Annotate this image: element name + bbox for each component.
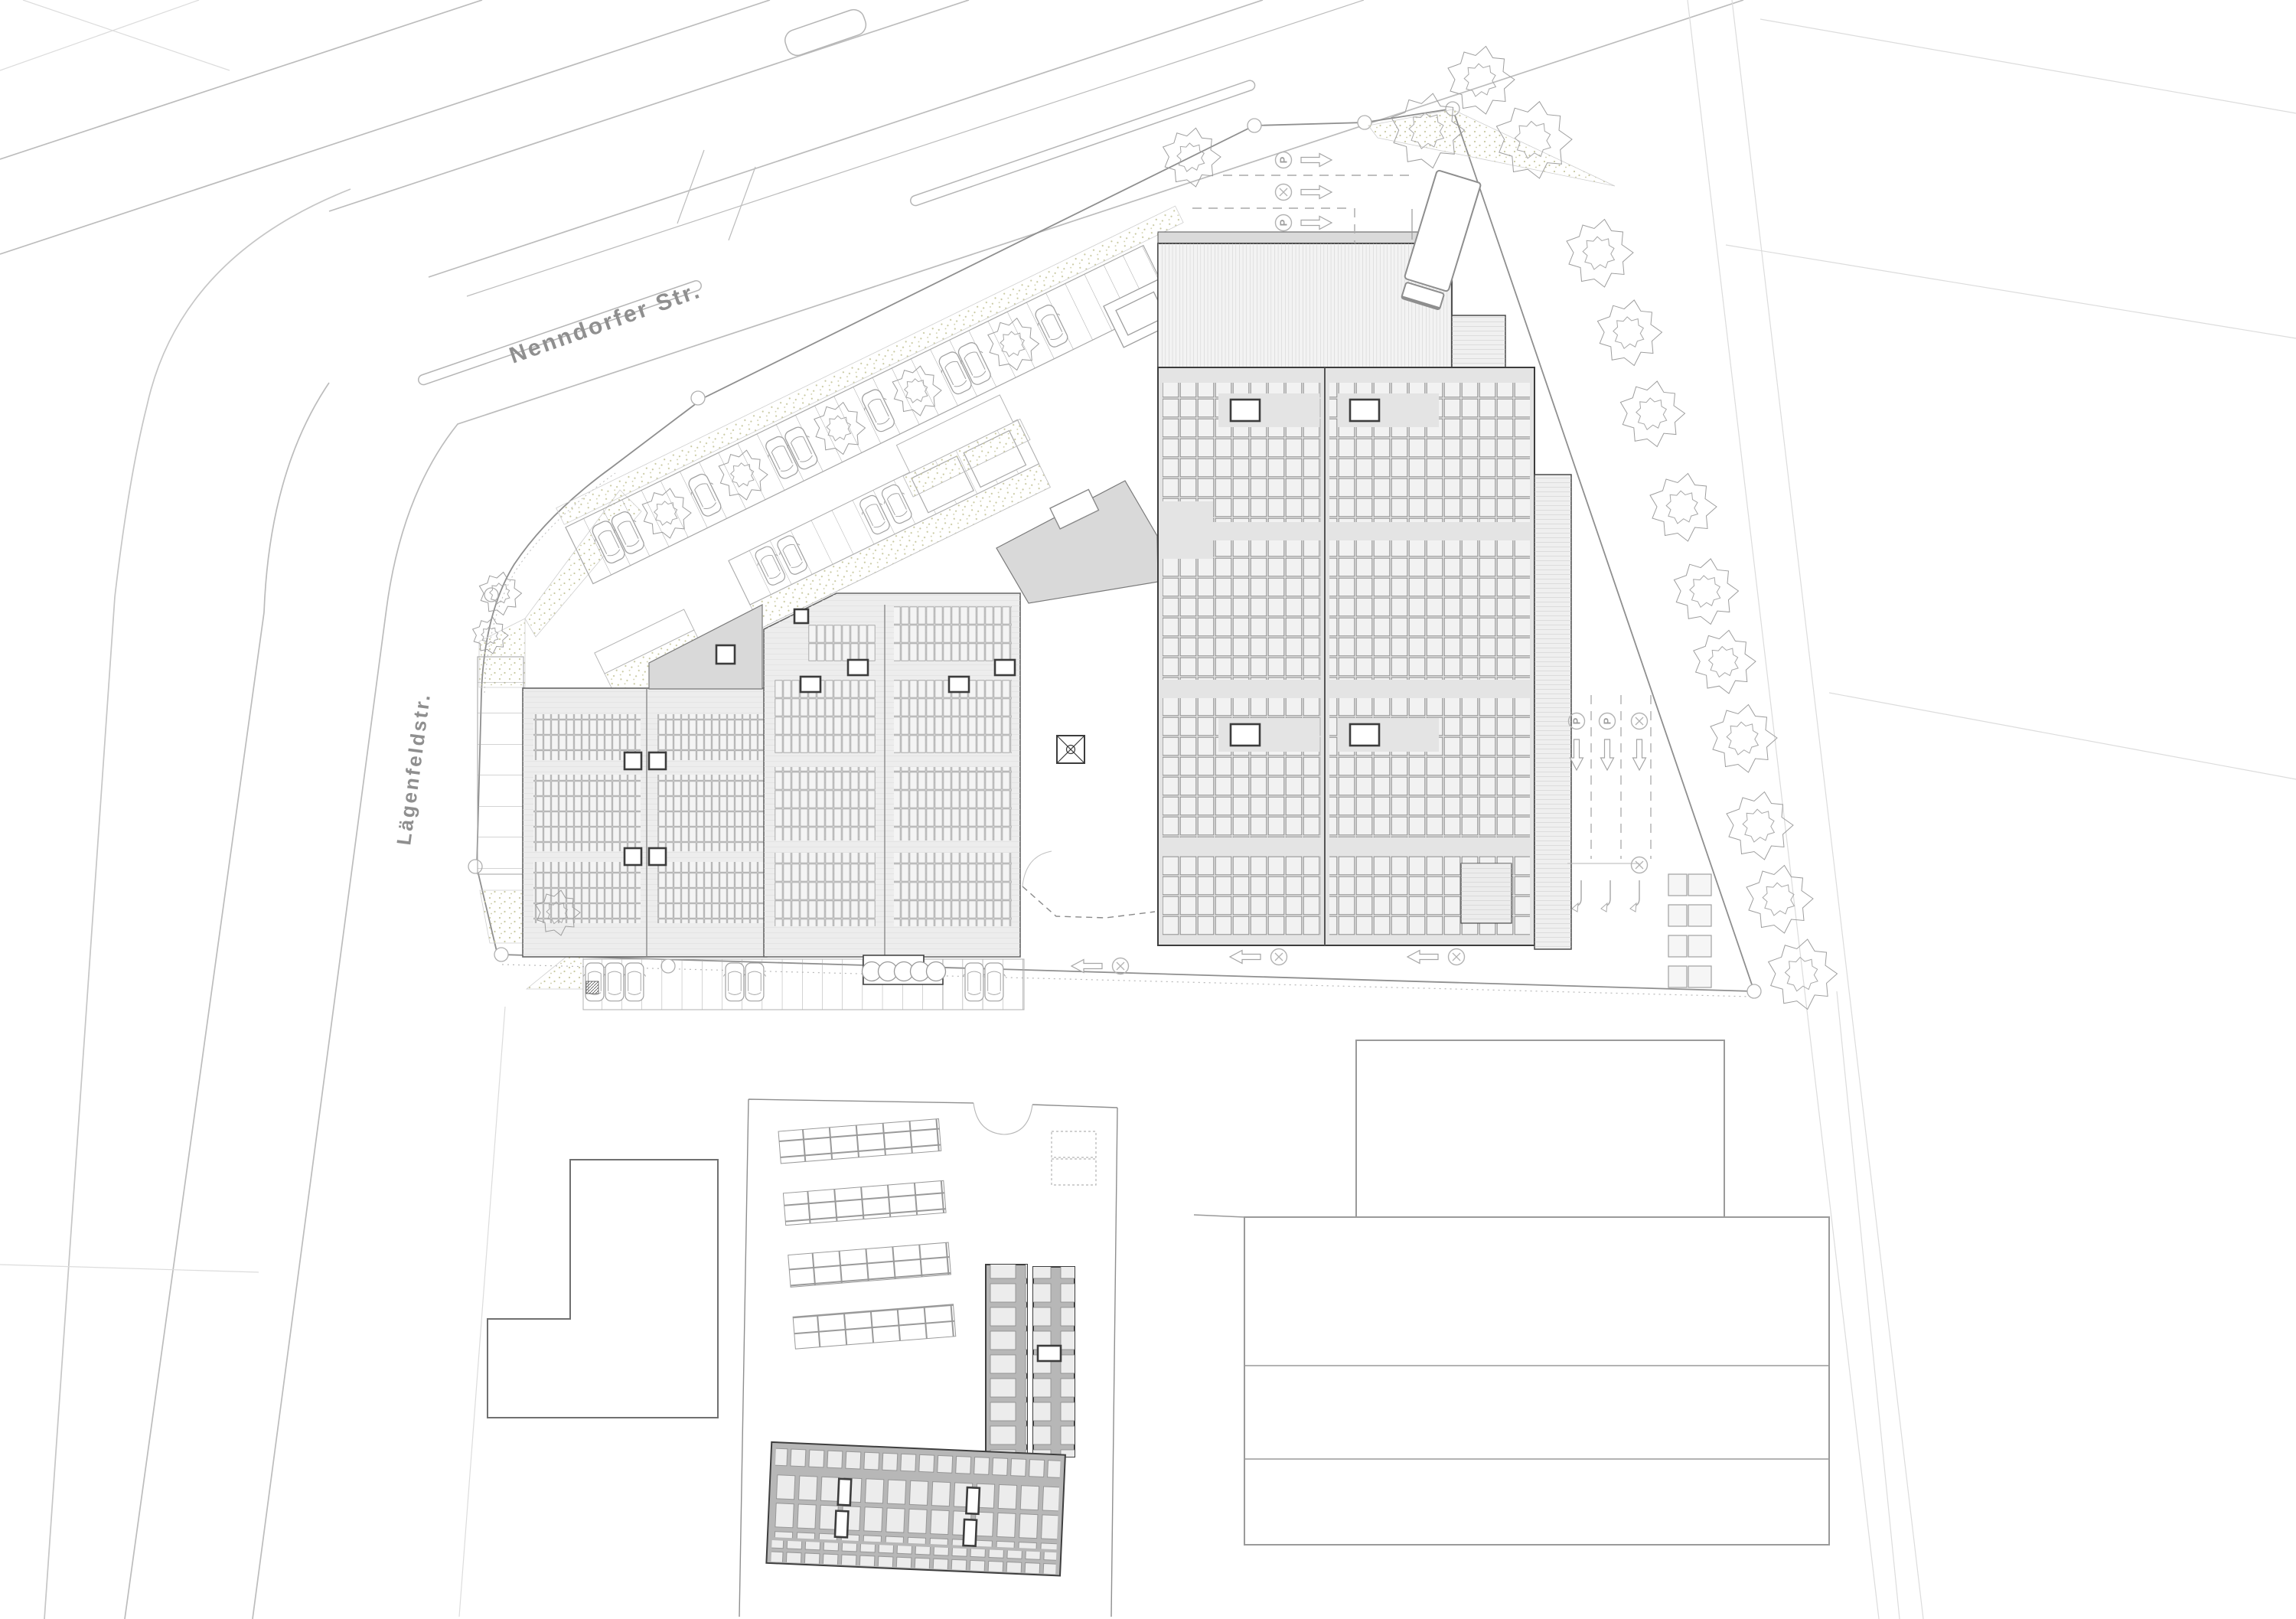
parking-circle-icon: P [1276, 152, 1292, 168]
direction-arrow-icon [1301, 186, 1332, 199]
parking-circle-icon: P [1569, 713, 1585, 730]
road-network [0, 0, 2296, 1619]
marked-area-dashed [1052, 1131, 1096, 1185]
south-parking-row [583, 955, 1024, 1010]
turn-arrow-icon [1601, 880, 1610, 912]
no-stopping-circle-icon [1632, 713, 1648, 730]
dark-building-south-wing [766, 1442, 1065, 1576]
building-a [523, 688, 767, 957]
tree-icon [1694, 630, 1756, 694]
direction-arrow-icon [1230, 951, 1261, 964]
parcel-southeast [1194, 1040, 1829, 1545]
street-label-nenndorfer: Nenndorfer Str. [506, 278, 704, 369]
building-b [764, 593, 1020, 957]
site-plan-drawing: P P P P [0, 0, 2296, 1619]
direction-arrow-icon [1633, 739, 1646, 770]
tree-icon [1711, 705, 1777, 773]
svg-text:P: P [1278, 219, 1290, 226]
street-label-laegenfeldstr: Lägenfeldstr. [392, 691, 435, 847]
north-lane-markings: P P [1192, 152, 1413, 244]
site-plan-page: P P P P [0, 0, 2296, 1619]
parking-circle-icon: P [1276, 215, 1292, 231]
tree-icon [1163, 128, 1221, 187]
no-stopping-circle-icon [1271, 949, 1287, 965]
direction-arrow-icon [1301, 217, 1332, 230]
tree-icon [1567, 220, 1633, 288]
direction-arrow-icon [1601, 739, 1614, 770]
tree-icon [1620, 381, 1684, 447]
direction-arrow-icon [1301, 154, 1332, 167]
parcel-southwest [488, 1160, 718, 1418]
turn-arrow-icon [1630, 880, 1639, 912]
svg-text:P: P [1278, 156, 1290, 163]
svg-text:P: P [1602, 717, 1613, 724]
turn-arrow-icon [1572, 880, 1581, 912]
direction-arrow-icon [1071, 960, 1102, 973]
svg-text:P: P [1571, 717, 1583, 724]
drain-icon [586, 981, 598, 994]
tree-icon [1727, 792, 1793, 860]
east-lane-markings: P P [1567, 695, 1711, 987]
gate-door-arcs [974, 1103, 1032, 1134]
greenhouse-rows [778, 1119, 956, 1350]
tree-icon [1674, 559, 1738, 625]
building-c [1158, 209, 1571, 949]
tree-icon [1746, 866, 1813, 934]
existing-building-l [488, 1160, 718, 1418]
tree-icon [1597, 300, 1662, 366]
west-parking-column [478, 657, 523, 874]
no-stopping-circle-icon [1632, 857, 1648, 873]
courtyard [1022, 736, 1155, 918]
no-stopping-circle-icon [1113, 958, 1129, 974]
no-stopping-circle-icon [1276, 184, 1292, 201]
south-lane-markings [1071, 949, 1465, 974]
dock-shelters [1668, 874, 1711, 987]
bus-bay [782, 7, 869, 58]
dark-building-wings [986, 1265, 1075, 1457]
parking-circle-icon: P [1600, 713, 1616, 730]
silo-icon [863, 962, 946, 981]
roof-opening-icon [1057, 736, 1084, 763]
parcel-lines [0, 0, 2296, 1619]
no-stopping-circle-icon [1449, 949, 1465, 965]
parcel-south-middle [739, 1099, 1117, 1617]
direction-arrow-icon [1407, 951, 1438, 964]
direction-arrow-icon [1570, 739, 1583, 770]
tree-icon [1650, 474, 1717, 542]
